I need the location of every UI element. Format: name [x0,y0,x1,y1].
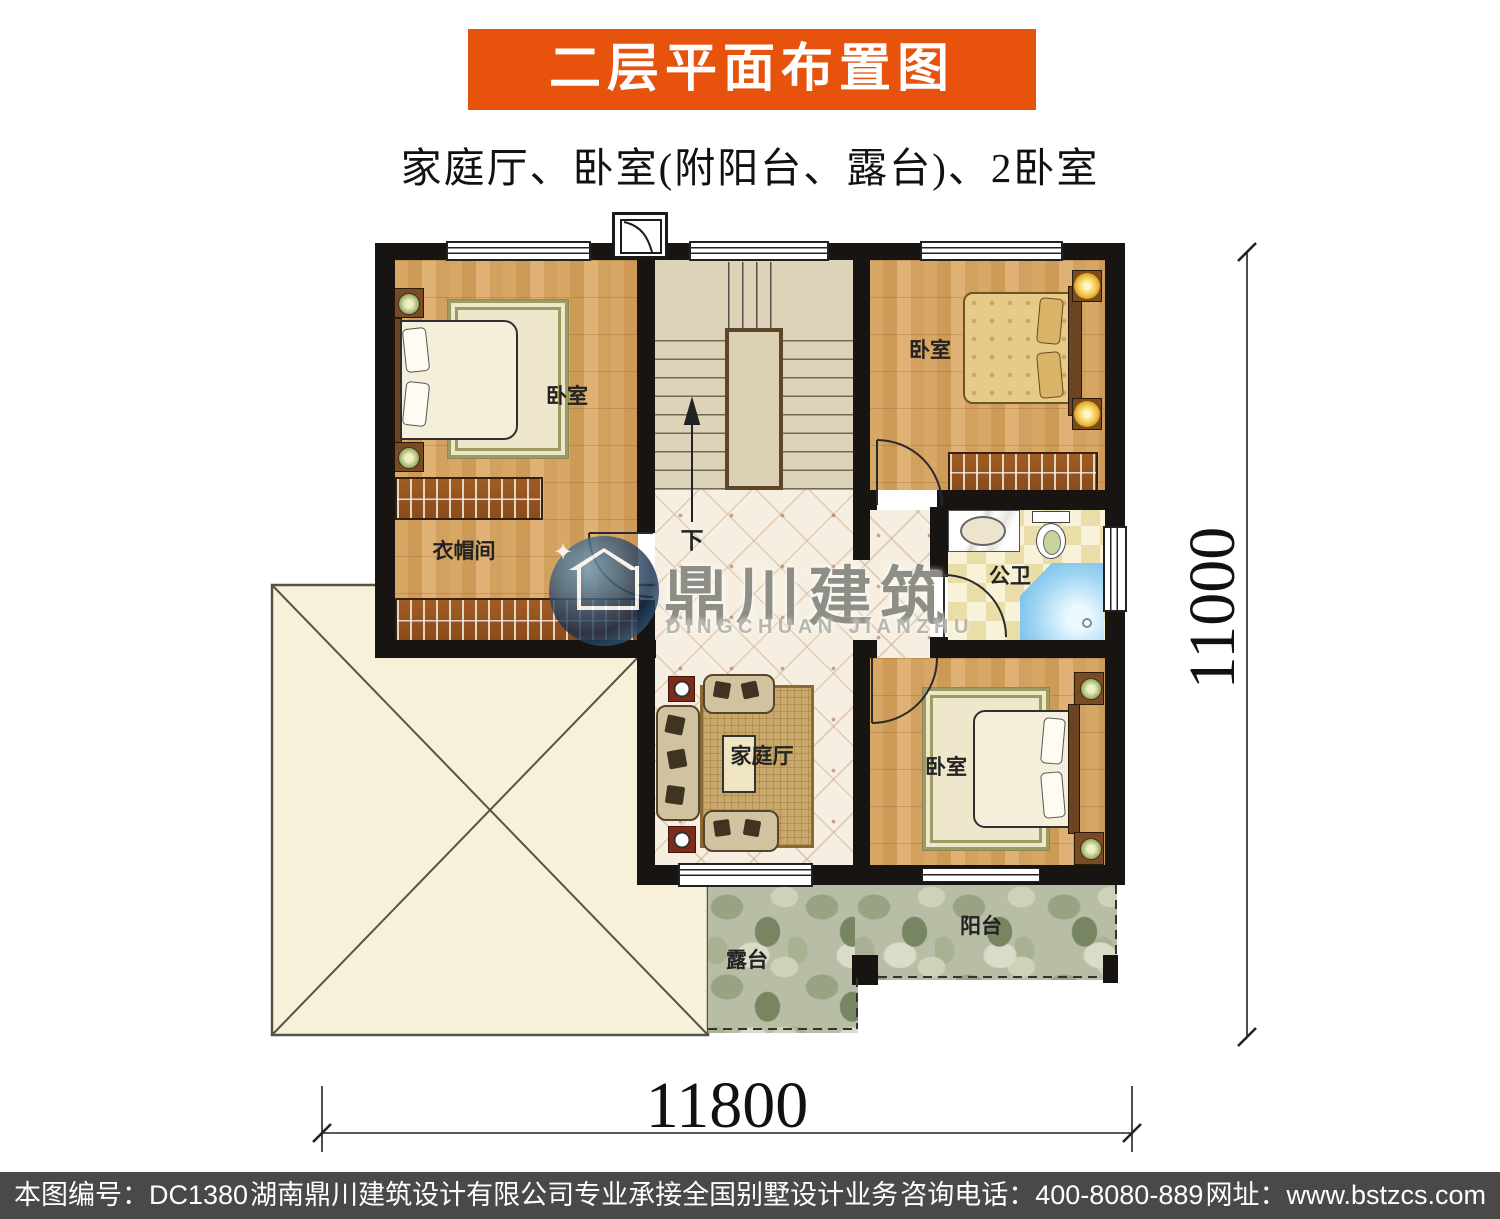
window-bedroom-top-right [920,241,1063,261]
footer-bar: 本图编号：DC1380 湖南鼎川建筑设计有限公司专业承接全国别墅设计业务 咨询电… [0,1172,1500,1219]
end-table [668,676,695,702]
lamp [398,293,420,315]
title-banner: 二层平面布置图 [468,29,1036,110]
wall-hall-left [637,658,655,885]
balcony-pillar-right [1103,955,1118,983]
pillow [402,327,430,373]
room-label-bedroom-top-left: 卧室 [546,380,588,410]
room-label-family-hall: 家庭厅 [731,740,794,770]
stair-upper-rails [728,262,778,328]
lamp [1080,838,1102,860]
sparkle-icon: ✦ [553,538,573,567]
window-bathroom [1103,526,1127,612]
sofa-cushion [741,681,760,700]
bed-headboard-bottom-right [1068,704,1080,834]
wardrobe-cloakroom-1 [395,477,543,520]
dimension-height: 11000 [1175,498,1245,718]
chimney-symbol [612,212,668,259]
dimension-width: 11800 [560,1068,894,1144]
balcony-door [922,868,1040,882]
sofa-cushion [667,749,688,770]
sofa-cushion [665,785,685,805]
balcony-pillar-left [852,955,878,985]
pillow [1036,351,1064,399]
sofa-cushion [664,714,685,735]
sofa-cushion [743,819,762,838]
wall-stairs-right [853,243,870,560]
lamp [1074,273,1100,299]
pillow [1036,297,1064,345]
footer-company: 湖南鼎川建筑设计有限公司专业承接全国别墅设计业务 [250,1172,898,1219]
room-label-bedroom-bottom-right: 卧室 [925,751,967,781]
end-table [668,826,696,853]
lamp [1074,401,1100,427]
stair-flight-left [655,340,725,490]
room-label-terrace: 露台 [726,944,768,974]
bed-headboard-top-right [1068,286,1082,416]
stair-flight-right [783,340,853,490]
lamp [1080,678,1102,700]
room-label-cloakroom: 衣帽间 [433,535,496,565]
footer-plan-number: 本图编号：DC1380 [14,1172,248,1219]
pillow [1040,771,1066,819]
page-subtitle: 家庭厅、卧室(附阳台、露台)、2卧室 [0,134,1500,194]
pillow [402,381,430,427]
page-title: 二层平面布置图 [468,29,1036,110]
sofa-cushion [713,681,732,700]
lamp [398,447,420,469]
house-icon [577,566,639,610]
toilet-tank [1032,511,1070,523]
footer-phone: 咨询电话：400-8080-889 [900,1172,1203,1219]
wall-bath-top-a [853,490,877,510]
footer-website: 网址：www.bstzcs.com [1205,1172,1486,1219]
room-label-bathroom: 公卫 [989,560,1031,590]
window-family-hall [678,863,813,887]
sink [960,516,1006,546]
sofa-cushion [713,819,731,837]
watermark-logo: ✦ [549,536,659,646]
wall-bath-bottom-b [937,640,1125,658]
toilet-seat [1043,530,1061,555]
wall-hall-right [853,640,870,885]
room-label-balcony: 阳台 [960,910,1002,940]
wall-bath-top-b [937,490,1125,510]
room-label-bedroom-top-right: 卧室 [909,334,951,364]
wall-left [375,243,395,658]
wardrobe-bedroom-top-right [948,452,1098,492]
wall-divider-stairs-upper [637,243,655,533]
stair-center-wall [725,328,783,490]
pillow [1040,717,1066,765]
watermark-english: DINGCHUAN JIANZHU [666,616,974,639]
shower-drain [1082,618,1092,628]
window-bedroom-top-left [446,241,591,261]
window-stairs [689,241,829,261]
